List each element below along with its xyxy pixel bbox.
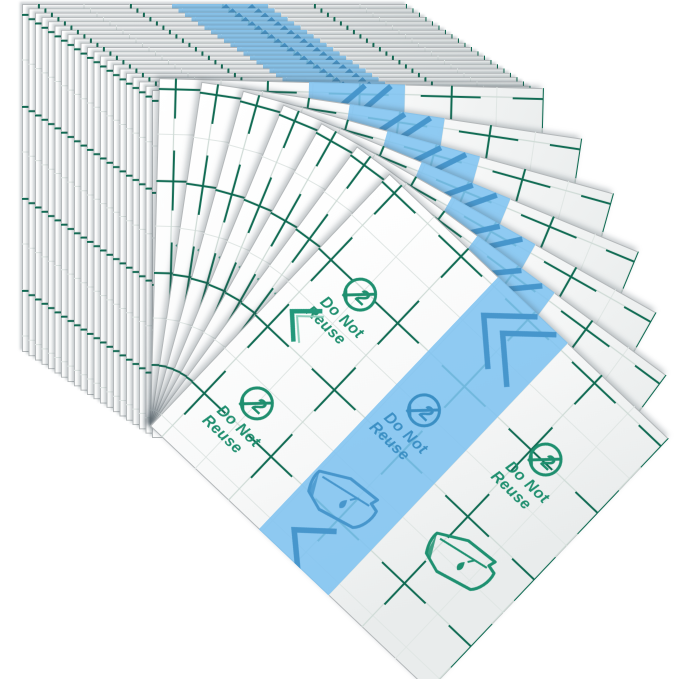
sheet-fan (147, 78, 669, 679)
product-photo: 2 Do Not Reuse (0, 0, 679, 679)
film-dressing-scene: 2 Do Not Reuse (0, 0, 679, 679)
